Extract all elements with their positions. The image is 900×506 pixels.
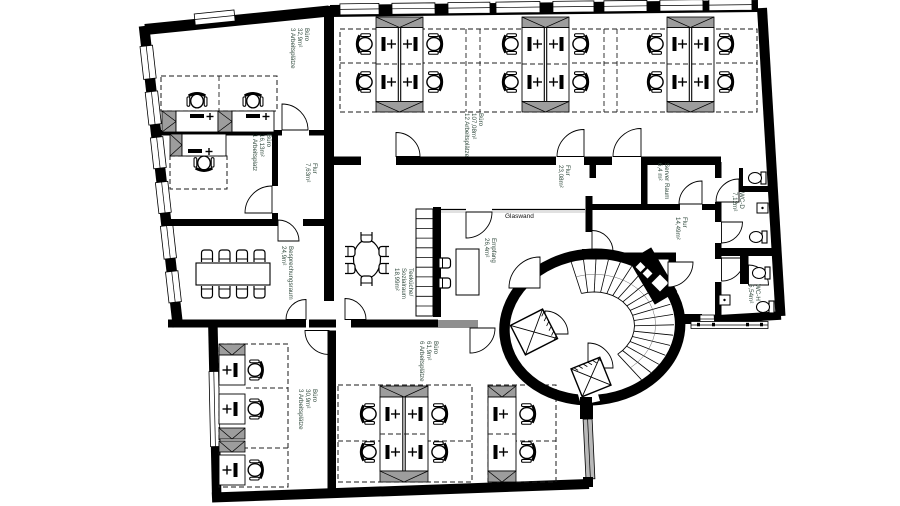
svg-text:WC-H5,54m²: WC-H5,54m² <box>747 284 761 303</box>
svg-text:Glaswand: Glaswand <box>505 213 534 220</box>
svg-text:WC-D7,12m²: WC-D7,12m² <box>731 192 745 211</box>
